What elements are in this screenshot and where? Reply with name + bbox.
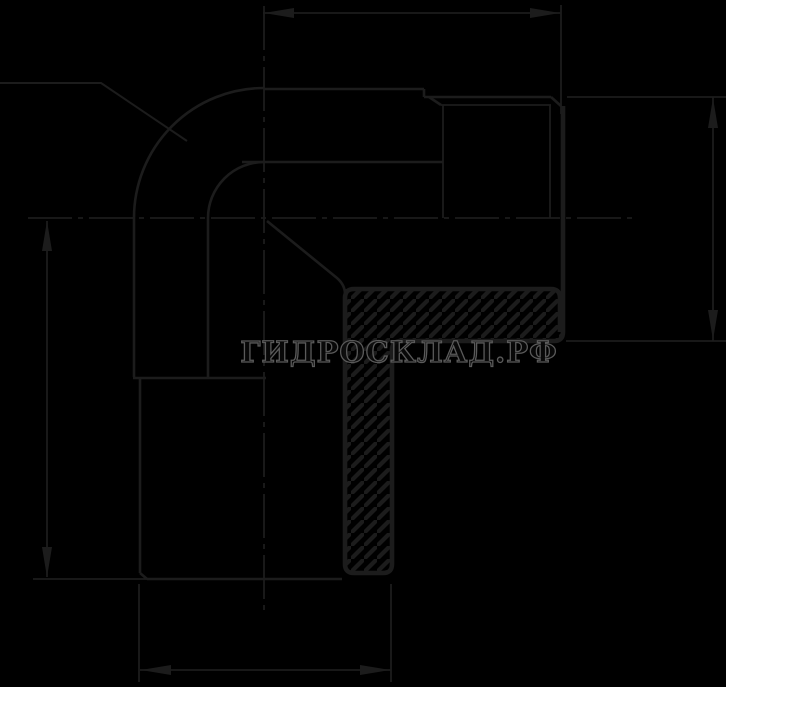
outline-line (551, 97, 561, 106)
dimension-arrow (42, 547, 52, 577)
drawing-background: ГИДРОСКЛАД.РФ (0, 0, 726, 687)
leader-line (0, 83, 187, 141)
outer-arc (134, 88, 264, 218)
page: ГИДРОСКЛАД.РФ (0, 0, 799, 712)
dimension-arrow (708, 98, 718, 128)
hatch-area (345, 289, 561, 341)
dimension-arrow (360, 665, 390, 675)
dimension-arrow (42, 221, 52, 251)
technical-drawing: ГИДРОСКЛАД.РФ (0, 0, 726, 687)
dimension-arrow (530, 8, 560, 18)
bore-cone-line (267, 221, 345, 294)
hatch-area (345, 341, 392, 573)
dimension-arrow (141, 665, 171, 675)
hatch-group (345, 289, 561, 573)
inner-arc (208, 162, 264, 218)
dimension-arrow (708, 310, 718, 340)
watermark-text: ГИДРОСКЛАД.РФ (240, 335, 557, 369)
dimension-arrow (264, 8, 294, 18)
